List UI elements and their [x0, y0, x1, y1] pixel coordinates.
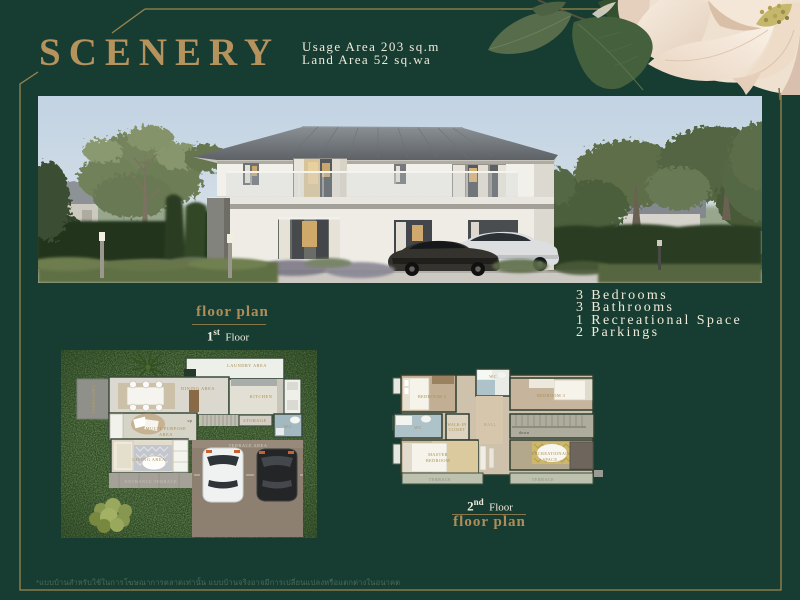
- svg-text:KITCHEN: KITCHEN: [250, 394, 273, 399]
- svg-text:TERRACE AREA: TERRACE AREA: [229, 443, 268, 448]
- svg-text:RECREATIONAL: RECREATIONAL: [532, 451, 568, 456]
- svg-text:AREA: AREA: [159, 432, 173, 437]
- svg-text:TERRACE: TERRACE: [429, 477, 451, 482]
- svg-text:up: up: [188, 418, 193, 423]
- svg-text:WC: WC: [284, 424, 292, 429]
- svg-text:BEDROOM 2: BEDROOM 2: [418, 394, 446, 399]
- svg-text:FORECOURT: FORECOURT: [91, 385, 96, 413]
- svg-text:WALK-IN: WALK-IN: [447, 423, 466, 427]
- svg-text:BEDROOM 3: BEDROOM 3: [537, 393, 565, 398]
- svg-text:ENTRANCE TERRACE: ENTRANCE TERRACE: [125, 479, 177, 484]
- svg-text:BEDROOM: BEDROOM: [426, 458, 450, 463]
- svg-text:LIVING AREA: LIVING AREA: [132, 457, 166, 462]
- svg-text:STORAGE: STORAGE: [243, 418, 267, 423]
- svg-text:MULTI-PURPOSE: MULTI-PURPOSE: [146, 426, 187, 431]
- svg-text:MASTER: MASTER: [428, 452, 448, 457]
- svg-text:TERRACE: TERRACE: [532, 477, 554, 482]
- svg-text:SPACE: SPACE: [543, 457, 558, 462]
- svg-text:HALL: HALL: [483, 422, 496, 427]
- svg-text:WC: WC: [489, 374, 497, 379]
- svg-text:down: down: [519, 430, 530, 435]
- svg-text:WC: WC: [414, 425, 422, 430]
- svg-text:CLOSET: CLOSET: [449, 428, 466, 432]
- svg-text:DINING AREA: DINING AREA: [181, 386, 215, 391]
- svg-text:LAUNDRY AREA: LAUNDRY AREA: [227, 363, 267, 368]
